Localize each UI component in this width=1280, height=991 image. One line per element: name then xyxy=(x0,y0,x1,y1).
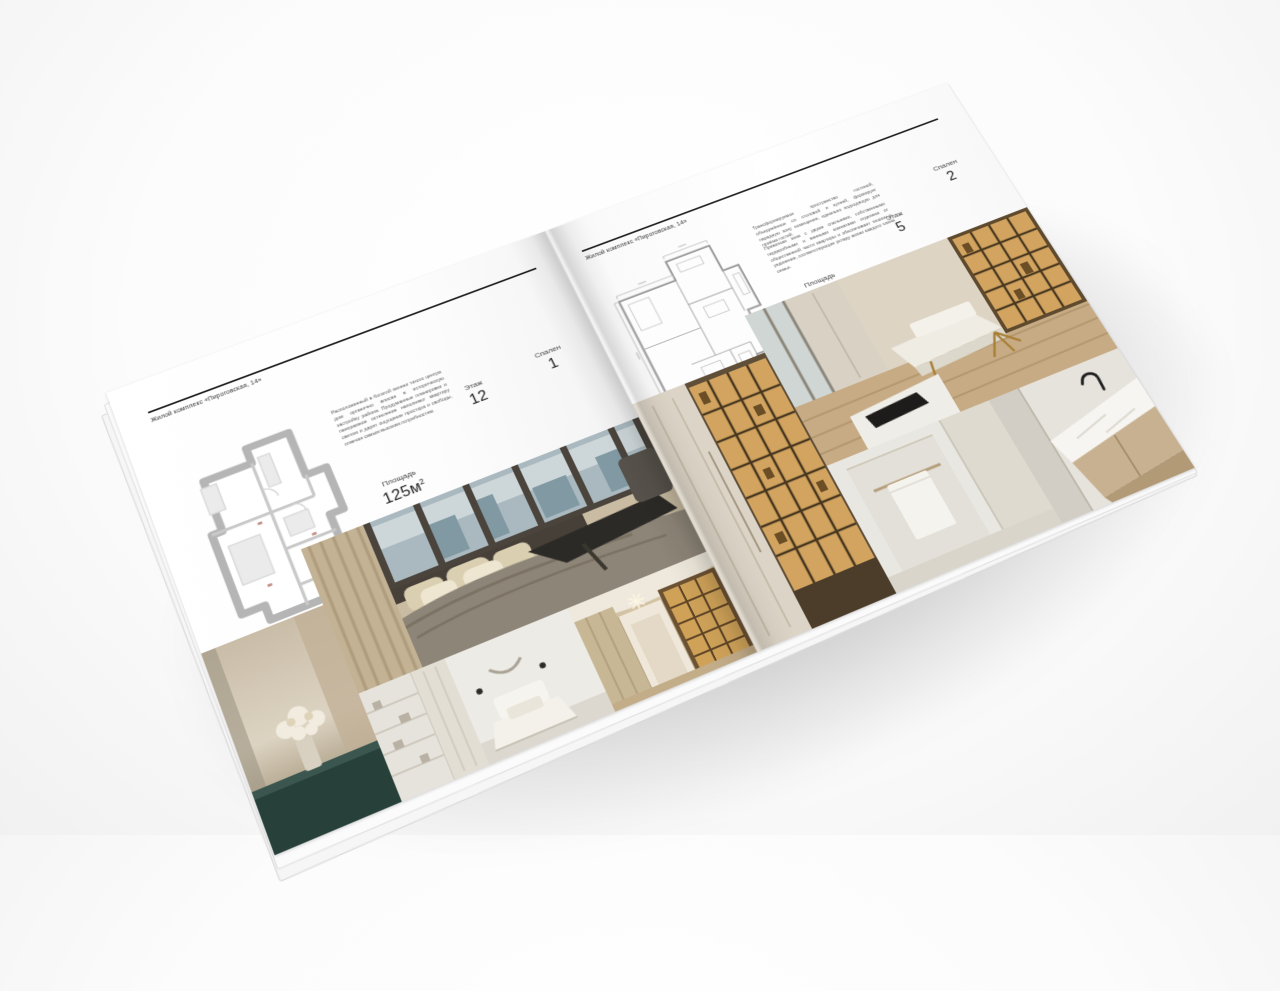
page-header: Жилой комплекс «Пироговская, 14» xyxy=(150,377,263,424)
stat-bedrooms: Спален 1 xyxy=(519,338,585,382)
stat-bedrooms: Спален 2 xyxy=(918,153,981,193)
description-text: Расположенный в богатой зелени тихого це… xyxy=(331,370,457,449)
magazine-spread: Жилой комплекс «Пироговская, 14» xyxy=(106,83,1195,855)
stat-floor: Этаж 12 xyxy=(444,371,510,416)
scene: Жилой комплекс «Пироговская, 14» xyxy=(0,0,1280,835)
